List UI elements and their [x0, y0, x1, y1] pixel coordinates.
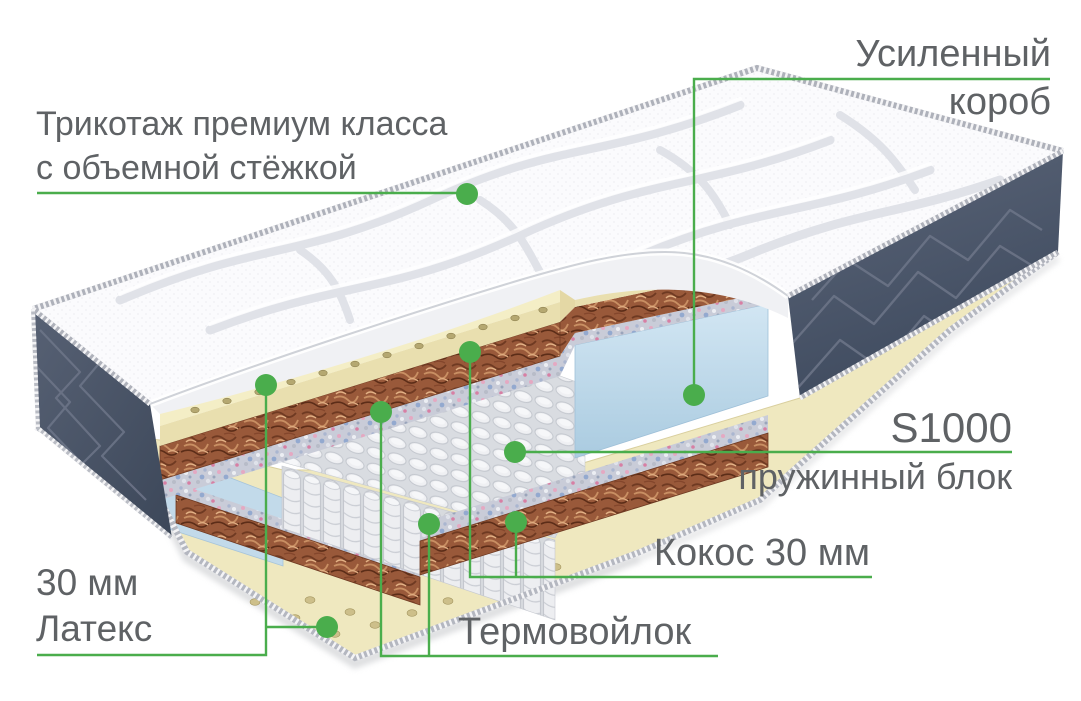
label-cover-line1: Трикотаж премиум класса: [36, 102, 447, 146]
label-cover: Трикотаж премиум класса с объемной стёжк…: [36, 102, 447, 190]
callout-dot-latex-top: [255, 374, 277, 396]
callout-dot-coconut-bottom: [505, 511, 527, 533]
callout-dot-cover: [456, 183, 478, 205]
label-latex: 30 мм Латекс: [36, 560, 152, 652]
callout-dot-springs: [504, 441, 526, 463]
mattress-layers-diagram: Трикотаж премиум класса с объемной стёжк…: [0, 0, 1081, 701]
label-reinforced-box: Усиленный короб: [855, 30, 1051, 126]
callout-dot-coconut-top: [459, 341, 481, 363]
label-cover-line2: с объемной стёжкой: [36, 146, 447, 190]
label-reinforced-box-line2: короб: [855, 78, 1051, 126]
label-spring-block-name: пружинный блок: [738, 456, 1012, 498]
callout-dot-latex-bottom: [316, 616, 338, 638]
callout-dot-felt-top: [370, 401, 392, 423]
label-spring-block-model: S1000: [891, 404, 1012, 452]
label-reinforced-box-line1: Усиленный: [855, 30, 1051, 78]
label-latex-line2: Латекс: [36, 606, 152, 652]
label-latex-line1: 30 мм: [36, 560, 152, 606]
callout-dot-box: [683, 384, 705, 406]
label-coconut: Кокос 30 мм: [654, 532, 870, 575]
label-thermo-felt: Термовойлок: [458, 611, 691, 654]
callout-dot-felt-bottom: [418, 513, 440, 535]
